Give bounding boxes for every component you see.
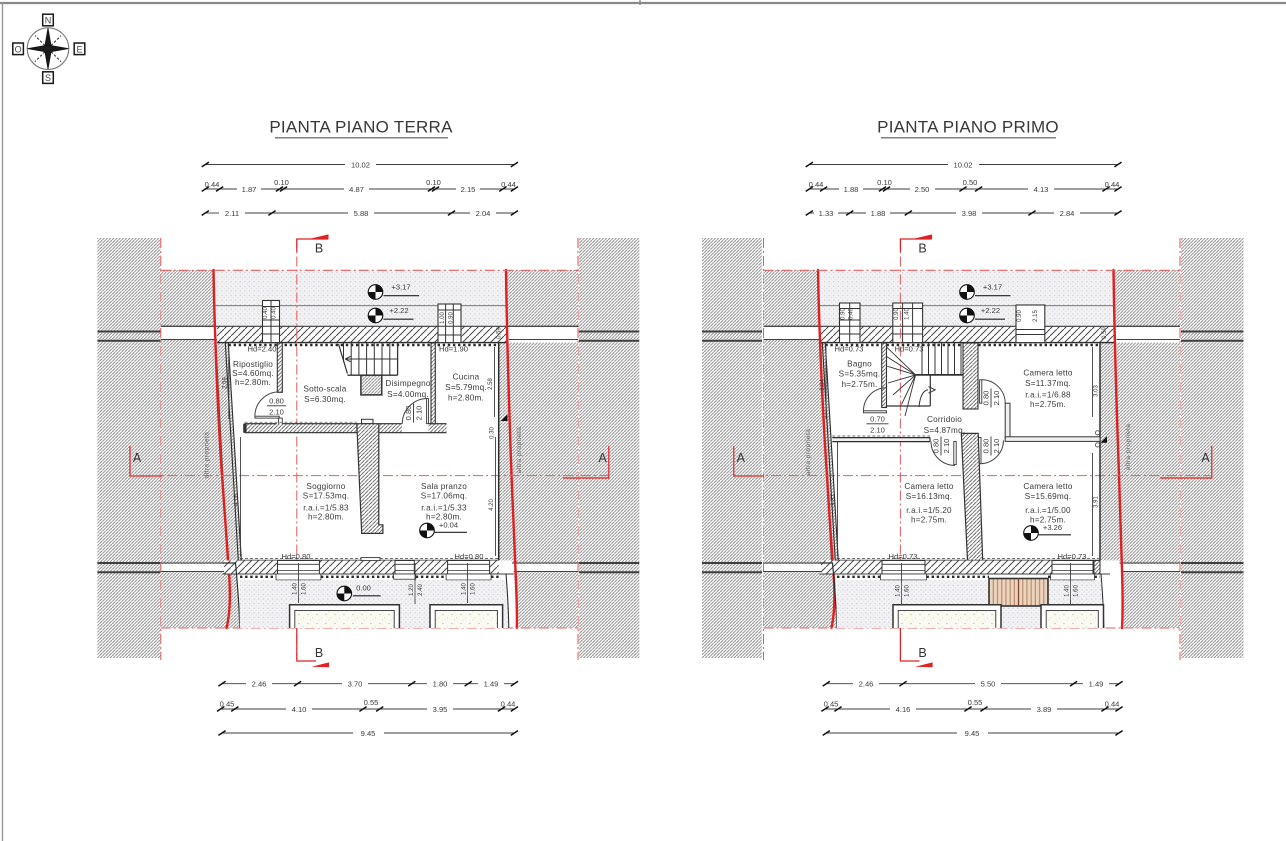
svg-text:1.88: 1.88 <box>871 209 886 218</box>
svg-text:altra proprietà: altra proprietà <box>1125 424 1132 471</box>
svg-text:S=17.06mq.: S=17.06mq. <box>421 492 467 501</box>
svg-text:1.60: 1.60 <box>302 583 308 595</box>
svg-text:2.15: 2.15 <box>461 185 476 194</box>
svg-text:altra proprietà: altra proprietà <box>805 429 812 476</box>
svg-text:r.a.i.=1/6.88: r.a.i.=1/6.88 <box>1025 391 1071 400</box>
svg-text:0.10: 0.10 <box>274 178 289 187</box>
svg-text:Hd=0.73: Hd=0.73 <box>1058 552 1087 561</box>
svg-text:Cucina: Cucina <box>453 373 480 382</box>
svg-text:1.60: 1.60 <box>1074 585 1080 597</box>
svg-text:+3.17: +3.17 <box>391 283 410 292</box>
svg-text:Soggiorno: Soggiorno <box>306 482 345 491</box>
svg-text:4.10: 4.10 <box>292 705 307 714</box>
svg-text:r.a.i.=1/5.00: r.a.i.=1/5.00 <box>1025 506 1071 515</box>
svg-text:PIANTA PIANO PRIMO: PIANTA PIANO PRIMO <box>877 118 1059 137</box>
svg-text:5.50: 5.50 <box>981 680 996 689</box>
svg-text:3.98: 3.98 <box>962 209 977 218</box>
svg-text:2.04: 2.04 <box>476 209 491 218</box>
svg-text:Camera letto: Camera letto <box>904 482 954 491</box>
svg-text:4.13: 4.13 <box>1034 185 1049 194</box>
svg-text:0.44: 0.44 <box>809 180 824 189</box>
svg-text:1.33: 1.33 <box>819 209 834 218</box>
svg-text:h=2.80m.: h=2.80m. <box>308 513 344 522</box>
svg-text:S=4.87mq.: S=4.87mq. <box>924 426 966 435</box>
svg-text:S=16.13mq.: S=16.13mq. <box>906 492 952 501</box>
svg-text:1.87: 1.87 <box>242 185 257 194</box>
svg-text:E: E <box>76 44 82 54</box>
svg-text:1.60: 1.60 <box>471 583 477 595</box>
svg-text:4.87: 4.87 <box>349 185 364 194</box>
svg-text:2.84: 2.84 <box>1060 209 1075 218</box>
svg-text:A: A <box>598 451 607 465</box>
svg-text:0.59: 0.59 <box>497 327 503 339</box>
svg-text:2.10: 2.10 <box>870 426 885 435</box>
svg-text:0.90: 0.90 <box>449 312 455 324</box>
svg-text:4.16: 4.16 <box>234 494 240 506</box>
svg-text:1.88: 1.88 <box>844 185 859 194</box>
svg-text:0.44: 0.44 <box>501 700 516 709</box>
svg-text:3.91: 3.91 <box>1093 496 1099 508</box>
svg-text:0.90: 0.90 <box>1017 310 1023 322</box>
svg-text:r.a.i.=1/5.33: r.a.i.=1/5.33 <box>421 504 467 513</box>
svg-text:0.10: 0.10 <box>426 178 441 187</box>
svg-text:altra proprietà: altra proprietà <box>204 432 211 479</box>
svg-text:Camera letto: Camera letto <box>1023 369 1073 378</box>
svg-text:0.70: 0.70 <box>870 415 885 424</box>
svg-text:2.11: 2.11 <box>225 209 239 218</box>
svg-text:+3.26: +3.26 <box>1043 523 1062 532</box>
svg-text:3.95: 3.95 <box>433 705 448 714</box>
svg-text:r.a.i.=1/5.20: r.a.i.=1/5.20 <box>906 506 952 515</box>
svg-text:2.15: 2.15 <box>1033 310 1039 322</box>
svg-text:1.60: 1.60 <box>905 585 911 597</box>
svg-text:4.16: 4.16 <box>896 705 911 714</box>
svg-text:1.40: 1.40 <box>292 583 298 595</box>
svg-text:0.90: 0.90 <box>840 308 846 320</box>
svg-text:A: A <box>737 451 746 465</box>
svg-text:B: B <box>918 242 926 256</box>
svg-text:0.10: 0.10 <box>877 178 892 187</box>
svg-text:altra proprietà: altra proprietà <box>516 427 523 474</box>
svg-text:Disimpegno: Disimpegno <box>385 379 430 388</box>
svg-text:h=2.75m.: h=2.75m. <box>842 380 878 389</box>
svg-text:10.02: 10.02 <box>351 160 370 169</box>
svg-text:S=5.35mq.: S=5.35mq. <box>839 370 881 379</box>
svg-text:1.80: 1.80 <box>433 680 448 689</box>
svg-text:2.10: 2.10 <box>942 439 951 454</box>
svg-text:0.55: 0.55 <box>968 698 983 707</box>
svg-text:2.50: 2.50 <box>915 185 930 194</box>
svg-text:1.49: 1.49 <box>1089 680 1104 689</box>
svg-text:N: N <box>45 16 52 26</box>
svg-text:S=5.79mq.: S=5.79mq. <box>445 383 487 392</box>
svg-text:+2.22: +2.22 <box>389 306 408 315</box>
svg-text:0.30: 0.30 <box>490 427 496 439</box>
svg-text:1.40: 1.40 <box>905 308 911 320</box>
svg-text:Hd=0.80: Hd=0.80 <box>282 552 311 561</box>
svg-text:0.90: 0.90 <box>894 308 900 320</box>
svg-text:0.80: 0.80 <box>982 391 991 406</box>
svg-text:Hd=0.73: Hd=0.73 <box>895 345 924 354</box>
svg-text:3.03: 3.03 <box>1093 385 1099 397</box>
svg-text:Hd=2.40: Hd=2.40 <box>248 345 277 354</box>
svg-text:0.80: 0.80 <box>269 397 284 406</box>
svg-text:0.40: 0.40 <box>849 308 855 320</box>
svg-text:Camera letto: Camera letto <box>1023 482 1073 491</box>
svg-text:1.40: 1.40 <box>1064 585 1070 597</box>
svg-text:S: S <box>45 73 51 83</box>
svg-text:Hd=1.90: Hd=1.90 <box>439 345 468 354</box>
svg-text:2.46: 2.46 <box>859 680 874 689</box>
svg-text:3.04: 3.04 <box>820 379 826 391</box>
svg-text:h=2.80m.: h=2.80m. <box>448 394 484 403</box>
svg-text:10.02: 10.02 <box>953 160 972 169</box>
svg-text:0.44: 0.44 <box>205 180 220 189</box>
svg-text:0.40: 0.40 <box>271 307 277 319</box>
svg-text:0.44: 0.44 <box>1105 180 1120 189</box>
svg-text:0.55: 0.55 <box>364 698 379 707</box>
svg-text:2.10: 2.10 <box>992 439 1001 454</box>
svg-text:S=6.30mq.: S=6.30mq. <box>304 395 346 404</box>
svg-text:2.58: 2.58 <box>488 378 494 390</box>
svg-text:h=2.75m.: h=2.75m. <box>1030 400 1066 409</box>
svg-text:S=15.69mq.: S=15.69mq. <box>1025 492 1071 501</box>
svg-text:h=2.80m.: h=2.80m. <box>235 378 271 387</box>
svg-text:Sala pranzo: Sala pranzo <box>421 482 467 491</box>
svg-text:3.70: 3.70 <box>348 680 363 689</box>
svg-text:B: B <box>315 242 323 256</box>
svg-text:Bagno: Bagno <box>847 360 872 369</box>
svg-text:Hd=0.73: Hd=0.73 <box>835 345 864 354</box>
svg-text:2.10: 2.10 <box>269 408 284 417</box>
svg-text:2.40: 2.40 <box>418 584 424 596</box>
svg-text:+3.17: +3.17 <box>983 283 1002 292</box>
svg-text:4.20: 4.20 <box>489 499 495 511</box>
svg-text:0.45: 0.45 <box>824 700 839 709</box>
svg-text:O: O <box>15 44 22 54</box>
svg-text:r.a.i.=1/5.83: r.a.i.=1/5.83 <box>303 504 349 513</box>
svg-text:Corridoio: Corridoio <box>927 415 962 424</box>
svg-text:0.44: 0.44 <box>1105 700 1120 709</box>
svg-text:Hd=0.80: Hd=0.80 <box>455 552 484 561</box>
svg-text:S=11.37mq.: S=11.37mq. <box>1025 379 1071 388</box>
svg-text:9.45: 9.45 <box>965 729 980 738</box>
svg-text:3.89: 3.89 <box>1037 705 1052 714</box>
svg-text:h=2.75m.: h=2.75m. <box>911 516 947 525</box>
svg-text:2.10: 2.10 <box>992 391 1001 406</box>
svg-text:0.00: 0.00 <box>356 584 371 593</box>
svg-text:1.40: 1.40 <box>461 583 467 595</box>
svg-text:Sotto-scala: Sotto-scala <box>303 385 346 394</box>
svg-text:0.44: 0.44 <box>501 180 516 189</box>
svg-text:A: A <box>133 451 142 465</box>
svg-text:0.50: 0.50 <box>963 178 978 187</box>
svg-text:5.88: 5.88 <box>354 209 369 218</box>
svg-text:2.59: 2.59 <box>223 377 229 389</box>
svg-text:9.45: 9.45 <box>361 729 376 738</box>
svg-text:+2.22: +2.22 <box>981 306 1000 315</box>
svg-text:0.45: 0.45 <box>220 700 235 709</box>
svg-text:Hd=0.73: Hd=0.73 <box>889 552 918 561</box>
svg-text:3.87: 3.87 <box>831 494 837 506</box>
svg-text:1.20: 1.20 <box>409 584 415 596</box>
svg-text:1.00: 1.00 <box>440 312 446 324</box>
svg-text:B: B <box>918 646 926 660</box>
svg-text:+0.04: +0.04 <box>439 521 458 530</box>
svg-text:S=4.60mq.: S=4.60mq. <box>232 369 274 378</box>
svg-text:S=17.53mq.: S=17.53mq. <box>303 492 349 501</box>
svg-text:2.10: 2.10 <box>415 406 424 421</box>
svg-text:0.59: 0.59 <box>1102 327 1108 339</box>
svg-text:S=4.00mq.: S=4.00mq. <box>387 390 429 399</box>
svg-text:0.80: 0.80 <box>982 439 991 454</box>
svg-text:2.46: 2.46 <box>252 680 267 689</box>
svg-text:0.80: 0.80 <box>404 406 413 421</box>
svg-text:0.80: 0.80 <box>932 439 941 454</box>
svg-text:B: B <box>315 646 323 660</box>
svg-text:1.40: 1.40 <box>895 585 901 597</box>
svg-text:PIANTA PIANO TERRA: PIANTA PIANO TERRA <box>269 118 453 137</box>
svg-text:1.49: 1.49 <box>484 680 499 689</box>
svg-text:Ripostiglio: Ripostiglio <box>233 360 273 369</box>
svg-text:0.40: 0.40 <box>263 307 269 319</box>
svg-text:A: A <box>1201 451 1210 465</box>
